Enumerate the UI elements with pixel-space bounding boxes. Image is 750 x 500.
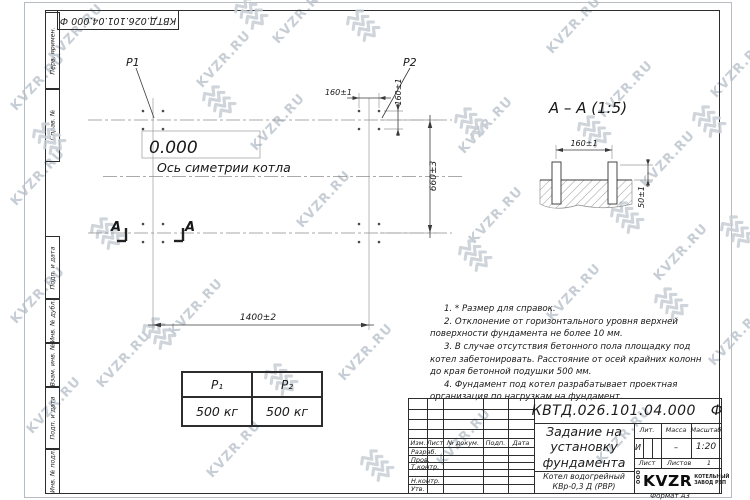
load-point-p1-label: P1 xyxy=(126,56,140,69)
product-line-2: КВр-0,3 Д (РВР) xyxy=(553,482,616,492)
dim-bolt-spacing-x: 160±1 xyxy=(325,88,352,97)
company-subtitle-line-2: ЗАВОД РЭП xyxy=(694,481,729,487)
col-podp: Подп. xyxy=(486,439,506,447)
section-letter-right: А xyxy=(184,220,195,235)
lit-value: И xyxy=(635,443,641,452)
row-tkontr: Т.контр. xyxy=(411,463,439,471)
section-title: А – А (1:5) xyxy=(548,99,627,117)
scale-value: 1:20 xyxy=(696,442,716,452)
symmetry-axis-label: Ось симетрии котла xyxy=(157,160,291,175)
scale-label: Масштаб xyxy=(691,426,722,434)
title-line-1: Задание на xyxy=(546,424,622,439)
drawing-sheet: KVZR.RU KVZR.RU KVZR.RU KVZR.RU KVZR.RU … xyxy=(0,0,750,500)
load-table-value-p2: 500 кг xyxy=(252,397,322,426)
title-line-3: фундамента xyxy=(543,455,626,470)
note-3: 3. В случае отсутствия бетонного пола пл… xyxy=(430,341,704,379)
col-doc: № докум. xyxy=(447,439,479,447)
product-line-1: Котел водогрейный xyxy=(543,472,625,482)
section-letter-left: А xyxy=(110,220,121,235)
title-line-2: установку xyxy=(550,439,617,454)
plan-view: P1 P2 0.000 Ось симетрии котла 1400±2 66… xyxy=(88,56,462,330)
mass-value: – xyxy=(674,443,678,452)
dim-width: 660±3 xyxy=(429,161,439,192)
load-point-p2-label: P2 xyxy=(403,56,417,69)
company-subtitle: КОТЕЛЬНЫЙ ЗАВОД РЭП xyxy=(694,475,729,487)
note-1: 1. * Размер для справок. xyxy=(430,303,704,316)
format-label: Формат А3 xyxy=(630,492,710,500)
col-izm: Изм. xyxy=(410,439,425,447)
title-block: Изм. Лист № докум. Подп. Дата Разраб. Пр… xyxy=(408,398,722,494)
company-logo: ООО KVZR КОТЕЛЬНЫЙ ЗАВОД РЭП xyxy=(634,468,721,493)
load-table-header-p2: P₂ xyxy=(252,372,322,397)
sheets-label: Листов xyxy=(667,459,691,467)
sheet-label: Лист xyxy=(639,459,655,467)
title-block-doc-number: КВТД.026.101.04.000 Ф xyxy=(534,399,721,423)
col-list: Лист xyxy=(427,439,443,447)
section-view: А – А (1:5) 160±1 50±1 xyxy=(540,99,653,208)
mass-label: Масса xyxy=(666,426,687,434)
title-block-product: Котел водогрейный КВр-0,3 Д (РВР) xyxy=(534,471,634,493)
dim-length: 1400±2 xyxy=(240,313,276,323)
notes-block: 1. * Размер для справок. 2. Отклонение о… xyxy=(430,303,704,404)
section-dim-bolt-spacing: 160±1 xyxy=(570,139,597,148)
note-2: 2. Отклонение от горизонтального уровня … xyxy=(430,316,704,341)
sheets-value: 1 xyxy=(707,459,711,467)
load-table: P₁ P₂ 500 кг 500 кг xyxy=(181,371,323,427)
company-name: KVZR xyxy=(643,472,692,490)
row-razrab: Разраб. xyxy=(411,448,437,456)
company-subtitle-line-1: КОТЕЛЬНЫЙ xyxy=(694,475,729,481)
elevation-mark: 0.000 xyxy=(149,138,198,158)
dim-bolt-spacing-y: 160±1 xyxy=(394,78,403,105)
load-table-header-p1: P₁ xyxy=(182,372,252,397)
company-ooo-label: ООО xyxy=(636,478,642,484)
section-dim-protrusion: 50±1 xyxy=(637,186,646,208)
col-data: Дата xyxy=(513,439,530,447)
title-block-title: Задание на установку фундамента xyxy=(534,423,634,471)
row-nkontr: Н.контр. xyxy=(411,477,440,485)
load-table-value-p1: 500 кг xyxy=(182,397,252,426)
row-utv: Утв. xyxy=(411,485,425,493)
lit-label: Лит. xyxy=(640,426,655,434)
